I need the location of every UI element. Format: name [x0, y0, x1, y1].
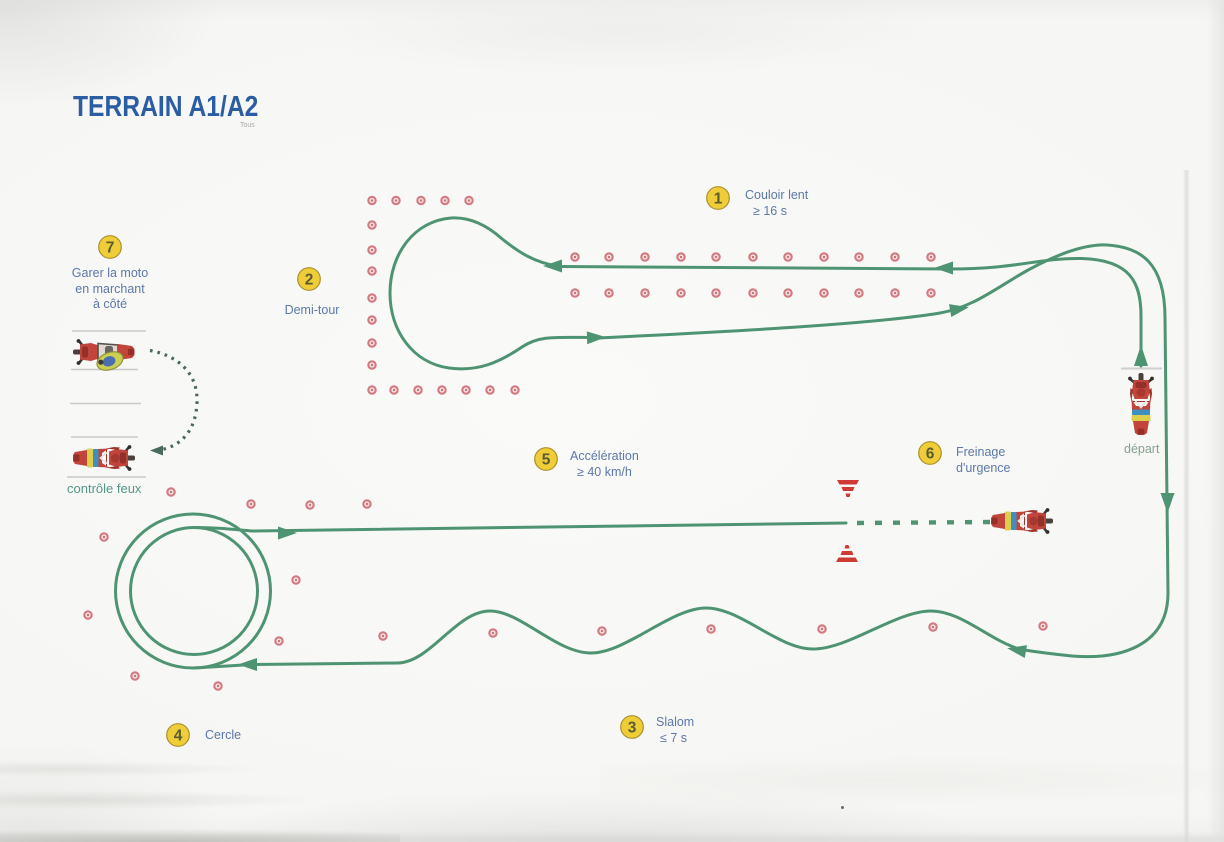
svg-text:3: 3 — [628, 720, 637, 737]
svg-text:2: 2 — [305, 272, 314, 289]
svg-text:4: 4 — [174, 728, 183, 745]
svg-text:1: 1 — [714, 191, 723, 208]
svg-text:5: 5 — [542, 452, 551, 469]
svg-text:7: 7 — [106, 240, 115, 257]
svg-text:6: 6 — [926, 446, 935, 463]
